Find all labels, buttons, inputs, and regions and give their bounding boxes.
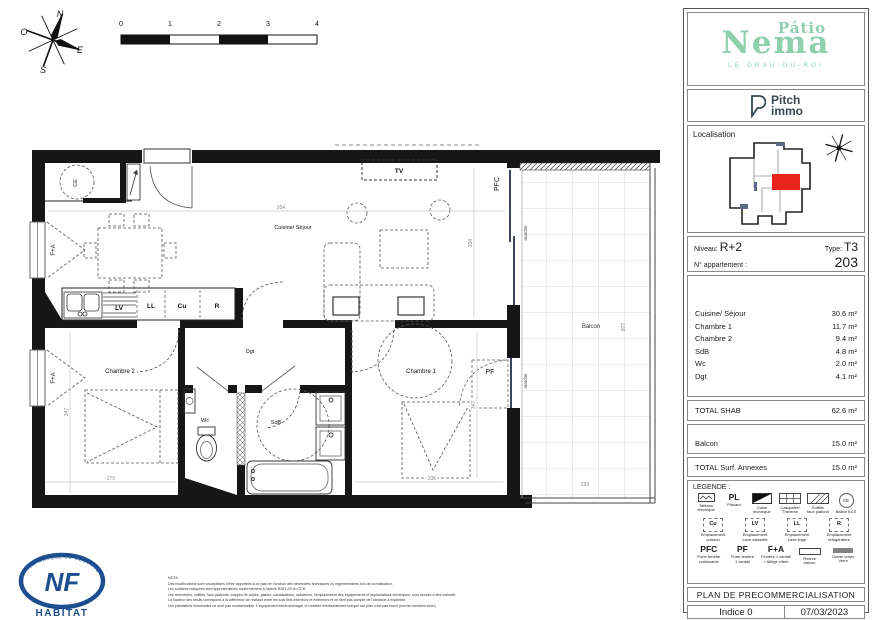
total-annexes-value: 15.0 m² <box>832 463 857 472</box>
compass-o: O <box>20 27 27 37</box>
bathroom-fixtures <box>184 389 345 494</box>
legend-item: Garde corps Verre <box>826 545 860 564</box>
glass-railing-icon <box>833 548 853 553</box>
kitchen-ll-label: LL <box>147 303 155 310</box>
legend-item: Relevé balcon <box>793 545 827 566</box>
legend-item: LV Emplacement Lave vaisselle <box>734 518 776 543</box>
total-shab-label: TOTAL SHAB <box>695 406 741 415</box>
apartment-number: 203 <box>835 254 858 270</box>
room-label-sejour: Cuisine/ Séjour <box>274 225 311 231</box>
localisation-map <box>706 138 826 230</box>
door-pf-label: PF <box>486 369 495 376</box>
room-labels: Cuisine/ Séjour Chambre 2 Chambre 1 Dgt … <box>105 225 436 426</box>
compass-n: N <box>57 9 64 19</box>
ballon-ecs-icon: CE <box>839 493 854 508</box>
sofa-cushions <box>333 297 424 315</box>
developer-line2: immo <box>771 106 803 116</box>
nota-line: Les plantations éventuelles ne sont pas … <box>168 604 468 610</box>
nota-block: NOTA : Des modifications sont susceptibl… <box>168 576 468 609</box>
room-label-sdb: SdB <box>271 420 282 426</box>
dim-sejour-depth: 334 <box>468 239 474 248</box>
revision-bar: Indice 0 07/03/2023 <box>687 605 865 619</box>
legend-row-1: Tableau électrique PL Placard Gaine tech… <box>692 493 860 515</box>
door-pf-chambre1: PF marche <box>459 358 528 408</box>
dim-balcon-width: 223 <box>581 482 590 488</box>
legend-item: Soffite/ faux plafond <box>804 493 832 515</box>
kitchen-lv-label: LV <box>115 305 123 312</box>
electrical-panel-icon <box>698 493 715 502</box>
balcon-value: 15.0 m² <box>832 439 857 448</box>
total-shab-row: TOTAL SHAB 62.6 m² <box>687 400 865 421</box>
kitchen-r-label: R <box>215 303 220 310</box>
sdb-duct-hatch <box>237 393 245 465</box>
legend-item: PF Porte fenêtre 1 vantail <box>726 545 760 564</box>
compass-e: E <box>77 45 84 55</box>
area-row: Cuisine/ Séjour30.6 m² <box>695 308 857 321</box>
developer-panel: Pitch immo <box>687 89 865 122</box>
dimension-labels: 954 334 347 270 336 347 <box>64 205 477 482</box>
dim-sejour-width: 954 <box>277 205 286 211</box>
areas-panel: Cuisine/ Séjour30.6 m² Chambre 111.7 m² … <box>687 275 865 397</box>
window-fa-label: F+A <box>51 244 57 255</box>
compass-rose: N O E S <box>17 4 89 76</box>
room-label-wc: Wc <box>201 418 209 424</box>
indice-cell: Indice 0 <box>688 606 785 618</box>
area-row: Chambre 29.4 m² <box>695 333 857 346</box>
date-cell: 07/03/2023 <box>785 606 864 618</box>
area-row: Chambre 111.7 m² <box>695 321 857 334</box>
type-value: T3 <box>844 240 858 254</box>
soffit-icon <box>807 493 829 504</box>
legend-item: Casquette/ Traverse <box>776 493 804 515</box>
water-heater-ce-label: CE <box>73 179 79 187</box>
window-fa-chambre2: F+A <box>29 350 85 406</box>
legend-row-3: PFC Porte fenêtre coulissante PF Porte f… <box>692 545 860 566</box>
dim-chambre1-depth: 347 <box>471 401 477 410</box>
scale-tick-0: 0 <box>119 21 123 28</box>
plan-title-bar: PLAN DE PRECOMMERCIALISATION <box>687 587 865 602</box>
apartment-label: N° appartement : <box>694 262 747 269</box>
title-block-sidebar: Pátio Nema LE GRAU-DU-ROI Pitch immo Loc… <box>683 8 869 613</box>
dim-chambre1-width: 336 <box>428 476 437 482</box>
floor-plan-drawing: N O E S 0 1 2 3 4 <box>0 0 680 620</box>
legend-item: F+A Fenêtre 1 vantail + Allège vitrée <box>759 545 793 564</box>
area-row: Wc2.0 m² <box>695 358 857 371</box>
balcon-label: Balcon <box>695 439 718 448</box>
room-label-dgt: Dgt <box>246 349 255 355</box>
scale-tick-3: 3 <box>266 21 270 28</box>
svg-text:LA MARQUE DE CERTIFICATION: LA MARQUE DE CERTIFICATION <box>0 0 101 574</box>
localisation-compass-icon <box>822 132 856 164</box>
brand-line2: Nema <box>688 28 864 59</box>
unit-info-panel: Niveau: R+2 Type: T3 N° appartement : 20… <box>687 236 865 272</box>
dim-balcon-depth: 677 <box>621 323 627 332</box>
window-fa-label: F+A <box>51 372 57 383</box>
total-annexes-label: TOTAL Surf. Annexes <box>695 463 767 472</box>
scale-tick-4: 4 <box>315 21 319 28</box>
localisation-panel: Localisation <box>687 125 865 233</box>
nf-name: HABITAT <box>36 608 89 619</box>
legend-item: LL Emplacement Lave linge <box>776 518 818 543</box>
legend-item: Gaine technique <box>748 493 776 515</box>
nf-ring-text: LA MARQUE DE CERTIFICATION <box>0 0 101 574</box>
total-shab-value: 62.6 m² <box>832 406 857 415</box>
dim-chambre2-width: 270 <box>107 476 116 482</box>
legend-item: R Emplacement réfrigérateur <box>818 518 860 543</box>
type-label: Type: <box>825 246 842 253</box>
step-label-1: marche <box>523 225 528 241</box>
kitchen: LV LL Cu R <box>62 288 235 320</box>
compass-s: S <box>40 65 46 75</box>
room-label-chambre1: Chambre 1 <box>406 369 436 375</box>
dim-chambre2-depth: 347 <box>64 408 70 417</box>
legend-title: LEGENDE : <box>693 484 860 491</box>
legend-item: PFC Porte fenêtre coulissante <box>692 545 726 564</box>
scale-tick-1: 1 <box>168 21 172 28</box>
legend-item: CE Ballon ECS <box>832 493 860 514</box>
step-label-2: marche <box>523 373 528 389</box>
technical-duct-icon <box>752 493 772 504</box>
unit-highlight <box>772 174 800 190</box>
legend-item: PL Placard <box>720 493 748 508</box>
legend-item: Cu Emplacement cuisson <box>692 518 734 543</box>
area-row: Dgt4.1 m² <box>695 371 857 384</box>
scale-bar: 0 1 2 3 4 <box>119 21 319 44</box>
legend-panel: LEGENDE : Tableau électrique PL Placard … <box>687 480 865 584</box>
legend-row-2: Cu Emplacement cuisson LV Emplacement La… <box>692 518 860 543</box>
balcony-edge-icon <box>799 548 821 555</box>
total-annexes-row: TOTAL Surf. Annexes 15.0 m² <box>687 457 865 477</box>
scale-tick-2: 2 <box>217 21 221 28</box>
balcon-row: Balcon 15.0 m² <box>687 424 865 454</box>
floor-plan-sheet: { "page": { "compass": {"n": "N", "o": "… <box>0 0 877 620</box>
niveau-label: Niveau: <box>694 246 718 253</box>
brand-panel: Pátio Nema LE GRAU-DU-ROI <box>687 12 865 86</box>
kitchen-cu-label: Cu <box>178 303 187 310</box>
room-label-chambre2: Chambre 2 <box>105 369 135 375</box>
niveau-value: R+2 <box>720 240 742 254</box>
balcony: Balcon 677 223 <box>520 163 655 503</box>
pitch-immo-icon <box>749 94 766 118</box>
nf-acronym: NF <box>45 567 81 597</box>
window-fa-sejour: F+A <box>29 222 85 278</box>
casquette-icon <box>779 493 801 504</box>
entrance-door <box>142 148 192 208</box>
door-pfc-label: PFC <box>494 177 501 191</box>
brand-subtitle: LE GRAU-DU-ROI <box>688 62 864 69</box>
room-label-balcon: Balcon <box>582 324 600 330</box>
tv-label: TV <box>395 168 404 175</box>
legend-item: Tableau électrique <box>692 493 720 513</box>
area-row: SdB4.8 m² <box>695 346 857 359</box>
